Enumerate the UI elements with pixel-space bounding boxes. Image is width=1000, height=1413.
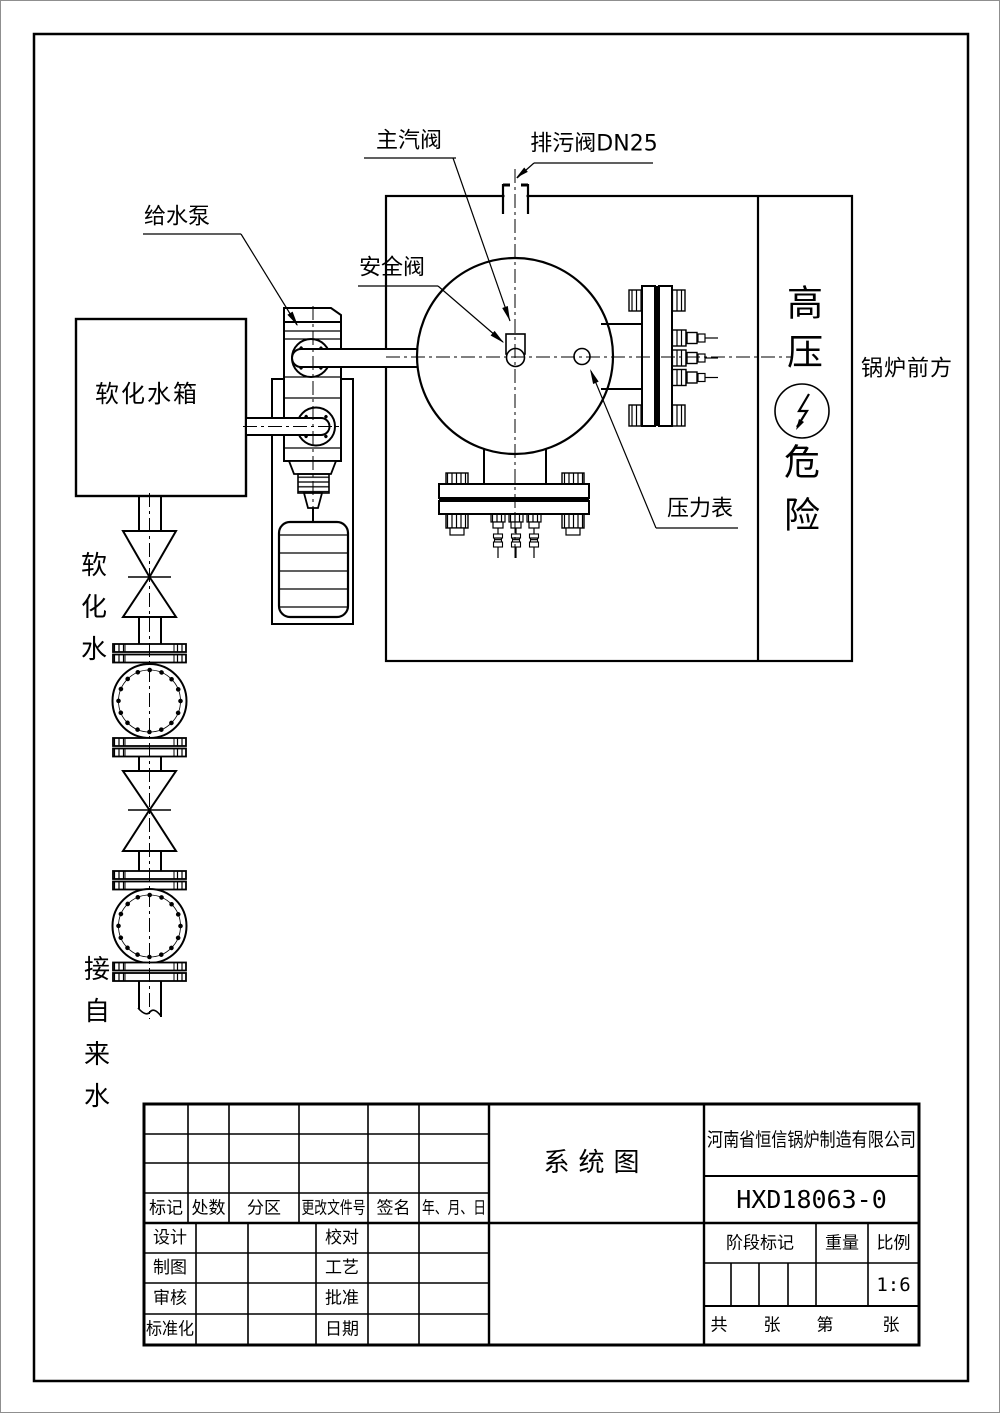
safety-valve-label: 安全阀 bbox=[359, 256, 425, 281]
drawing-number: HXD18063-0 bbox=[736, 1185, 887, 1214]
rev-col-count: 处数 bbox=[192, 1199, 226, 1219]
electrode-stud-2 bbox=[672, 350, 718, 366]
softened-water-tank-label: 软化水箱 bbox=[95, 380, 199, 408]
softened-water-char-3: 水 bbox=[81, 635, 107, 665]
bottom-flange bbox=[439, 448, 589, 558]
electrode-stud-1 bbox=[672, 330, 718, 346]
main-steam-valve-label: 主汽阀 bbox=[376, 129, 442, 154]
sheets-total-label: 共 bbox=[711, 1316, 728, 1336]
softened-water-label: 软 化 水 bbox=[81, 551, 107, 665]
softened-water-tank: 软化水箱 bbox=[76, 319, 246, 496]
rev-col-zone: 分区 bbox=[247, 1199, 281, 1219]
pressure-gauge-label: 压力表 bbox=[667, 497, 733, 522]
from-tap-water-label: 接 自 来 水 bbox=[84, 955, 110, 1112]
lightning-icon bbox=[796, 394, 809, 430]
danger-char-1: 高 bbox=[787, 284, 823, 325]
sheets-current-label: 第 bbox=[817, 1316, 834, 1336]
row-review: 审核 bbox=[153, 1289, 187, 1309]
bottom-stud-1 bbox=[491, 514, 505, 558]
right-electrode-flange bbox=[601, 286, 718, 426]
rev-col-doc-no: 更改文件号 bbox=[302, 1199, 366, 1219]
drawing-sheet: 软化水箱 bbox=[0, 0, 1000, 1413]
rev-col-signature: 签名 bbox=[377, 1199, 411, 1219]
row-drafting: 制图 bbox=[153, 1258, 187, 1278]
danger-char-3: 危 bbox=[784, 443, 820, 484]
softened-water-char-2: 化 bbox=[81, 593, 107, 623]
tap-water-char-1: 接 bbox=[84, 955, 110, 985]
row-date: 日期 bbox=[325, 1320, 359, 1340]
pump-motor bbox=[279, 522, 348, 617]
pump-to-boiler-pipe bbox=[292, 349, 418, 367]
title-block: 标记 处数 分区 更改文件号 签名 年、月、日 设计 校对 制图 工艺 审核 批… bbox=[144, 1104, 919, 1345]
row-standardization: 标准化 bbox=[146, 1320, 194, 1340]
system-diagram-canvas: 软化水箱 bbox=[1, 1, 1000, 1413]
scale-value: 1:6 bbox=[876, 1274, 910, 1296]
tap-water-char-3: 来 bbox=[84, 1040, 110, 1070]
callout-blowdown-valve: 排污阀DN25 bbox=[516, 132, 658, 179]
rev-col-mark: 标记 bbox=[149, 1199, 183, 1219]
callout-feed-water-pump: 给水泵 bbox=[143, 205, 298, 327]
feed-water-pump-label: 给水泵 bbox=[144, 205, 210, 230]
high-pressure-danger-panel: 高 压 危 险 bbox=[775, 284, 829, 537]
row-design: 设计 bbox=[153, 1228, 187, 1248]
row-approve: 批准 bbox=[325, 1289, 359, 1309]
electrode-stud-3 bbox=[672, 370, 718, 386]
company-name: 河南省恒信锅炉制造有限公司 bbox=[707, 1129, 916, 1151]
sheets-current-unit: 张 bbox=[883, 1316, 900, 1336]
scale-label: 比例 bbox=[877, 1234, 911, 1254]
drawing-title: 系统图 bbox=[543, 1148, 648, 1178]
boiler-front-label: 锅炉前方 bbox=[861, 357, 953, 382]
stage-mark-label: 阶段标记 bbox=[726, 1234, 794, 1254]
weight-label: 重量 bbox=[825, 1234, 859, 1254]
row-proofread: 校对 bbox=[325, 1228, 359, 1248]
bottom-stud-2 bbox=[509, 514, 523, 558]
bottom-stud-3 bbox=[527, 514, 541, 558]
danger-char-4: 险 bbox=[784, 496, 820, 537]
blowdown-valve-label: 排污阀DN25 bbox=[530, 132, 657, 157]
row-process: 工艺 bbox=[325, 1258, 359, 1278]
softened-water-char-1: 软 bbox=[81, 551, 107, 581]
sheets-total-unit: 张 bbox=[764, 1316, 781, 1336]
tap-water-char-4: 水 bbox=[84, 1082, 110, 1112]
tap-water-char-2: 自 bbox=[84, 997, 110, 1027]
rev-col-date: 年、月、日 bbox=[422, 1199, 486, 1219]
danger-char-2: 压 bbox=[787, 333, 823, 374]
